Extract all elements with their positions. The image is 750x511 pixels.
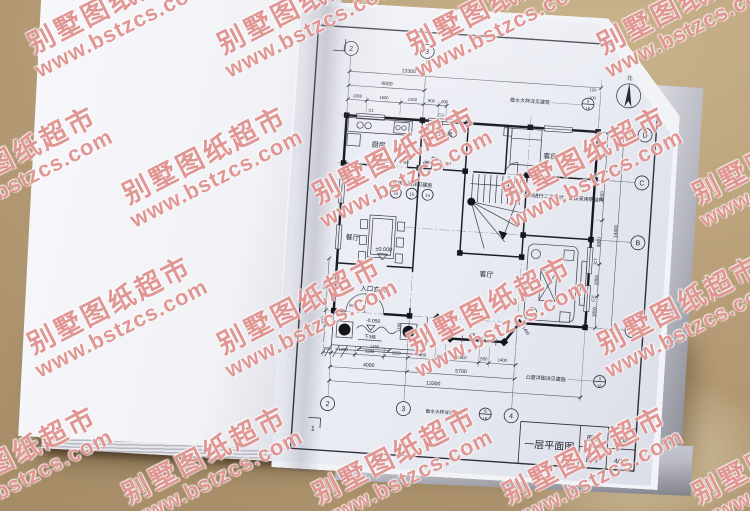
svg-text:A: A — [629, 328, 634, 335]
grid-bubbles: 2 3 2 3 4 D C B A — [320, 39, 657, 431]
drawing-frame: 1 — [291, 25, 662, 471]
svg-text:C7: C7 — [590, 295, 595, 301]
svg-text:13300: 13300 — [426, 381, 441, 388]
svg-text:16: 16 — [482, 416, 488, 421]
entry-label: 入口玄关 — [360, 283, 387, 294]
kitchen-label: 厨房 — [372, 140, 387, 150]
apron-note-top: 散水大样详见建筑 — [510, 97, 550, 107]
svg-text:1450: 1450 — [370, 344, 380, 350]
svg-text:C7: C7 — [593, 258, 598, 264]
steps-label: 下3级 — [364, 333, 377, 341]
svg-text:C: C — [639, 180, 645, 187]
svg-text:D: D — [642, 132, 648, 139]
svg-text:1400: 1400 — [498, 357, 508, 363]
svg-text:M2: M2 — [383, 158, 390, 163]
guest-room-label: 客房 — [543, 151, 558, 161]
svg-text:800: 800 — [428, 98, 436, 103]
bay-note: 凸窗详图详见建施 — [526, 374, 566, 384]
drawing-title: 一层平面图 — [524, 438, 575, 453]
structural-columns — [329, 112, 601, 352]
svg-text:550: 550 — [480, 356, 488, 361]
title-block: 一层平面图 图别 建筑 图号 4/18 — [518, 421, 637, 471]
living-label: 客厅 — [479, 269, 494, 279]
stair-redesign-note: 楼梯进行二次设计，建议采用钢结构 — [524, 192, 604, 204]
svg-text:C8: C8 — [508, 327, 514, 332]
svg-text:1800: 1800 — [594, 274, 600, 285]
apron-note-bottom: 散水大样详见建筑 — [426, 408, 464, 417]
svg-text:4000: 4000 — [381, 81, 393, 88]
svg-text:3: 3 — [401, 406, 405, 413]
svg-text:B: B — [635, 240, 640, 247]
svg-text:C3: C3 — [438, 112, 444, 117]
svg-text:14500: 14500 — [613, 224, 619, 238]
svg-text:M3: M3 — [403, 160, 410, 165]
svg-text:1800: 1800 — [379, 95, 389, 101]
svg-text:13300: 13300 — [401, 68, 416, 75]
svg-text:3: 3 — [598, 376, 601, 381]
level-ground: ±0.000 — [375, 246, 392, 253]
level-entry: -0.050 — [366, 318, 381, 325]
svg-text:2: 2 — [325, 401, 329, 408]
svg-text:4000: 4000 — [363, 362, 375, 369]
svg-text:C9: C9 — [470, 332, 476, 337]
dining-label: 餐厅 — [345, 232, 360, 242]
svg-text:6: 6 — [484, 408, 487, 413]
svg-text:图别: 图别 — [587, 433, 601, 443]
svg-text:15: 15 — [409, 192, 415, 197]
svg-text:2: 2 — [349, 46, 353, 53]
svg-text:1800: 1800 — [457, 355, 467, 361]
svg-text:1800: 1800 — [591, 306, 597, 317]
svg-text:C1: C1 — [368, 108, 374, 113]
svg-text:2050: 2050 — [602, 147, 608, 158]
svg-text:15: 15 — [597, 383, 603, 388]
svg-text:1400: 1400 — [521, 325, 531, 336]
svg-text:550: 550 — [436, 353, 444, 358]
svg-text:100: 100 — [589, 87, 597, 92]
svg-text:3: 3 — [425, 49, 429, 56]
svg-text:14: 14 — [425, 193, 431, 198]
svg-text:1200: 1200 — [408, 97, 418, 103]
svg-text:16: 16 — [393, 190, 399, 195]
svg-text:5700: 5700 — [455, 368, 467, 375]
svg-text:3900: 3900 — [596, 236, 602, 247]
photo-scene: 1 2 3 2 3 4 D C B A — [0, 0, 750, 511]
svg-text:M2: M2 — [423, 161, 430, 166]
svg-text:4: 4 — [509, 413, 513, 420]
svg-text:16: 16 — [585, 106, 591, 111]
svg-text:400: 400 — [441, 99, 449, 104]
bathroom-label: 卫生间 — [437, 129, 453, 138]
svg-text:1000: 1000 — [353, 93, 363, 99]
svg-text:图号: 图号 — [585, 455, 599, 464]
svg-text:750: 750 — [444, 161, 452, 166]
svg-text:4/18: 4/18 — [614, 458, 627, 466]
svg-text:M1: M1 — [349, 303, 356, 308]
opening-labels: M2 M3 M2 M1 C1 C3 C7 C7 C8 C9 — [348, 107, 608, 345]
svg-text:建筑: 建筑 — [615, 435, 629, 445]
